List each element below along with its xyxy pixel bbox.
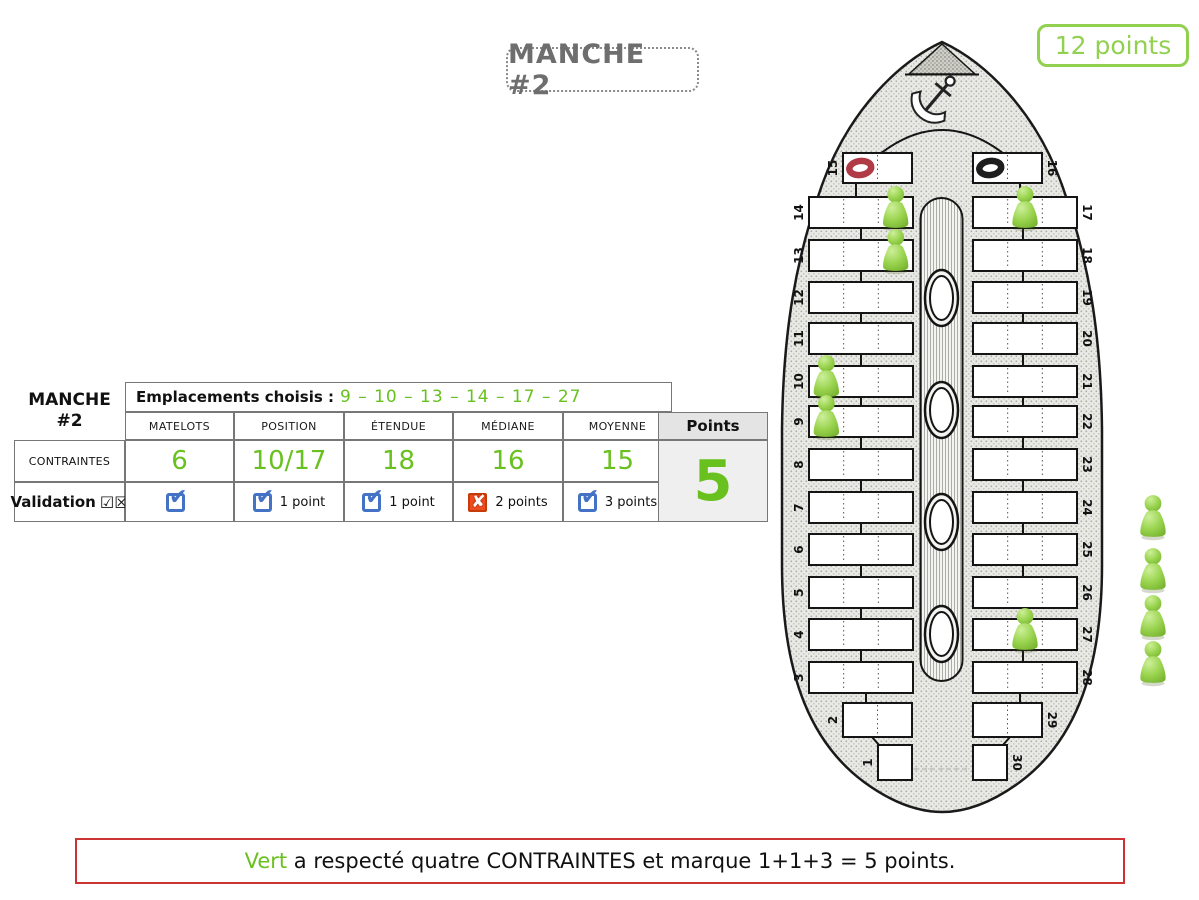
result-banner: Vert a respecté quatre CONTRAINTES et ma… <box>75 838 1125 884</box>
slot-label-9: 9 <box>792 417 806 425</box>
slot-20[interactable] <box>973 323 1077 354</box>
slot-label-24: 24 <box>1080 499 1094 516</box>
validation-points-label: 2 points <box>495 495 547 510</box>
slot-25[interactable] <box>973 534 1077 565</box>
slot-label-26: 26 <box>1080 584 1094 601</box>
slot-label-13: 13 <box>792 247 806 264</box>
validation-etendue: 1 point <box>344 482 453 522</box>
score-table: MANCHE #2 Emplacements choisis : 9 – 10 … <box>14 382 768 522</box>
slot-23[interactable] <box>973 449 1077 480</box>
spare-pawn[interactable] <box>1140 548 1165 593</box>
slot-24[interactable] <box>973 492 1077 523</box>
round-title: MANCHE #2 <box>506 47 699 92</box>
slot-label-22: 22 <box>1080 413 1094 430</box>
slot-label-3: 3 <box>792 673 806 681</box>
slot-7[interactable] <box>809 492 913 523</box>
slot-label-21: 21 <box>1080 373 1094 390</box>
column-header-matelots: MATELOTS <box>125 412 234 440</box>
slot-label-6: 6 <box>792 545 806 553</box>
validation-row-label: Validation ☑☒ <box>14 482 125 522</box>
validation-points-label: 3 points <box>605 495 657 510</box>
validation-position: 1 point <box>234 482 344 522</box>
contraintes-row-label: CONTRAINTES <box>14 440 125 482</box>
slot-label-14: 14 <box>792 204 806 221</box>
porthole <box>925 606 958 662</box>
slot-8[interactable] <box>809 449 913 480</box>
column-header-etendue: ÉTENDUE <box>344 412 453 440</box>
slot-26[interactable] <box>973 577 1077 608</box>
player-name: Vert <box>245 849 288 873</box>
column-header-mediane: MÉDIANE <box>453 412 563 440</box>
slot-label-1: 1 <box>861 758 875 766</box>
validation-matelots <box>125 482 234 522</box>
slot-3[interactable] <box>809 662 913 693</box>
slot-label-10: 10 <box>792 373 806 390</box>
porthole <box>925 494 958 550</box>
slot-19[interactable] <box>973 282 1077 313</box>
slot-18[interactable] <box>973 240 1077 271</box>
column-header-moyenne: MOYENNE <box>563 412 672 440</box>
slot-label-15: 15 <box>826 160 840 177</box>
checkbox-checked-icon[interactable] <box>362 493 381 512</box>
slot-label-27: 27 <box>1080 626 1094 643</box>
slot-label-28: 28 <box>1080 669 1094 686</box>
checkbox-crossed-icon[interactable] <box>468 493 487 512</box>
slot-label-23: 23 <box>1080 456 1094 473</box>
validation-points-label: 1 point <box>280 495 326 510</box>
porthole <box>925 270 958 326</box>
slot-30[interactable] <box>973 745 1007 780</box>
contrainte-moyenne-value: 15 <box>563 440 672 482</box>
porthole <box>925 382 958 438</box>
result-text: a respecté quatre CONTRAINTES et marque … <box>287 849 955 873</box>
slot-21[interactable] <box>973 366 1077 397</box>
slot-label-30: 30 <box>1010 754 1024 771</box>
slot-12[interactable] <box>809 282 913 313</box>
slot-label-20: 20 <box>1080 330 1094 347</box>
slot-28[interactable] <box>973 662 1077 693</box>
contrainte-position-value: 10/17 <box>234 440 344 482</box>
checkbox-checked-icon[interactable] <box>166 493 185 512</box>
contrainte-mediane-value: 16 <box>453 440 563 482</box>
slot-label-16: 16 <box>1045 160 1059 177</box>
slot-label-7: 7 <box>792 503 806 511</box>
round-points-value: 5 <box>658 440 768 522</box>
table-round-label: MANCHE #2 <box>14 382 125 440</box>
points-header: Points <box>658 412 768 440</box>
slot-label-25: 25 <box>1080 541 1094 558</box>
ship-board: 1514131211109876543211617181920212223242… <box>770 30 1170 825</box>
validation-mediane: 2 points <box>453 482 563 522</box>
validation-points-label: 1 point <box>389 495 435 510</box>
slot-label-19: 19 <box>1080 289 1094 306</box>
slot-label-11: 11 <box>792 330 806 347</box>
slot-label-12: 12 <box>792 289 806 306</box>
slot-label-2: 2 <box>826 716 840 724</box>
round-title-text: MANCHE #2 <box>508 39 697 101</box>
slot-label-29: 29 <box>1045 712 1059 729</box>
slot-1[interactable] <box>878 745 912 780</box>
slot-label-4: 4 <box>792 630 806 638</box>
emplacements-label: Emplacements choisis : <box>136 388 334 406</box>
slot-label-18: 18 <box>1080 247 1094 264</box>
slot-11[interactable] <box>809 323 913 354</box>
slot-label-8: 8 <box>792 460 806 468</box>
slot-label-5: 5 <box>792 588 806 596</box>
slot-22[interactable] <box>973 406 1077 437</box>
checkbox-checked-icon[interactable] <box>578 493 597 512</box>
slot-4[interactable] <box>809 619 913 650</box>
contrainte-etendue-value: 18 <box>344 440 453 482</box>
checkbox-checked-icon[interactable] <box>253 493 272 512</box>
spare-pawn[interactable] <box>1140 595 1165 640</box>
slot-label-17: 17 <box>1080 204 1094 221</box>
emplacements-row: Emplacements choisis : 9 – 10 – 13 – 14 … <box>125 382 672 412</box>
slot-6[interactable] <box>809 534 913 565</box>
validation-moyenne: 3 points <box>563 482 672 522</box>
emplacements-values: 9 – 10 – 13 – 14 – 17 – 27 <box>340 387 582 407</box>
slot-5[interactable] <box>809 577 913 608</box>
column-header-position: POSITION <box>234 412 344 440</box>
spare-pawn[interactable] <box>1140 641 1165 686</box>
spare-pawn[interactable] <box>1140 495 1165 540</box>
contrainte-matelots-value: 6 <box>125 440 234 482</box>
